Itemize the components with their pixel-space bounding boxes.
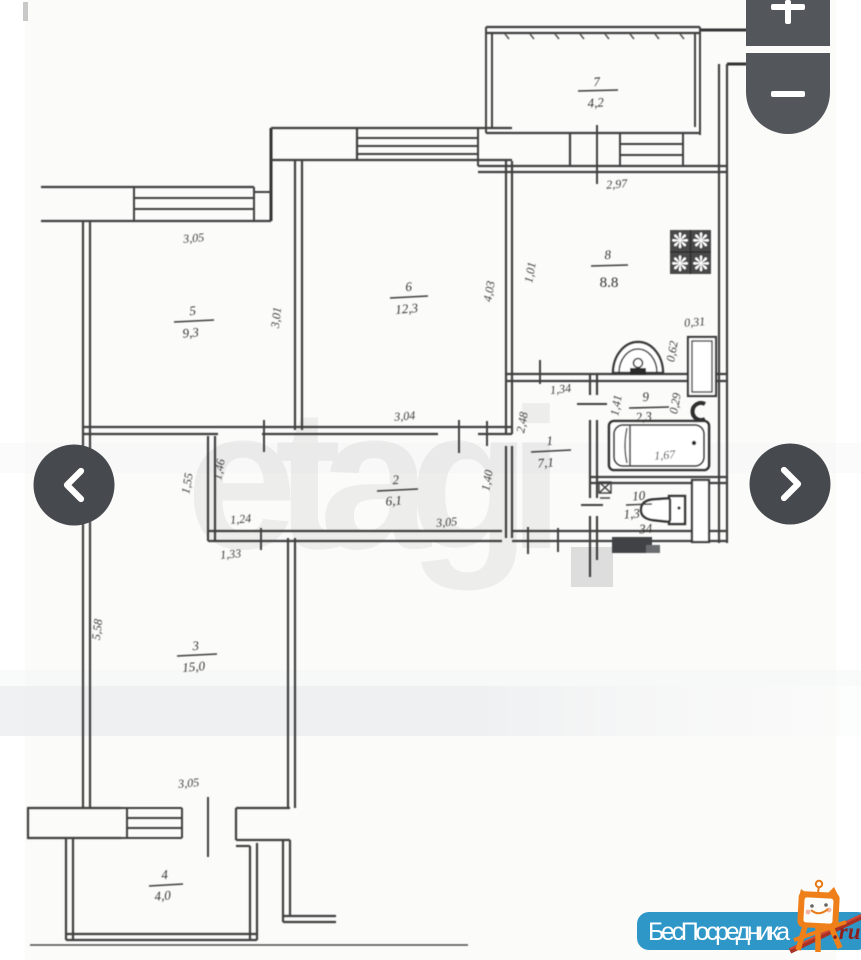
svg-text:❋: ❋ <box>692 253 710 276</box>
svg-text:3,01: 3,01 <box>268 306 285 330</box>
svg-text:3,05: 3,05 <box>435 514 458 530</box>
svg-text:etagi: etagi <box>186 368 564 591</box>
svg-text:4,2: 4,2 <box>587 94 605 110</box>
svg-text:БесПосредника: БесПосредника <box>648 918 790 946</box>
svg-text:10: 10 <box>632 488 647 504</box>
svg-text:3,05: 3,05 <box>182 230 205 246</box>
svg-text:34: 34 <box>638 521 654 537</box>
svg-text:1,24: 1,24 <box>230 511 252 527</box>
svg-text:❋: ❋ <box>671 230 689 253</box>
svg-text:1,3: 1,3 <box>623 505 641 521</box>
svg-text:12,3: 12,3 <box>395 300 419 317</box>
svg-text:1,34: 1,34 <box>549 381 571 397</box>
svg-text:9,3: 9,3 <box>182 324 200 340</box>
svg-text:6,1: 6,1 <box>385 492 402 508</box>
svg-text:❋: ❋ <box>692 230 710 253</box>
svg-text:0,31: 0,31 <box>684 314 706 330</box>
svg-text:1,33: 1,33 <box>220 546 242 562</box>
svg-text:15,0: 15,0 <box>182 658 206 675</box>
svg-text:3,05: 3,05 <box>177 775 200 791</box>
svg-text:1,67: 1,67 <box>654 447 677 463</box>
svg-text:2,97: 2,97 <box>606 176 629 192</box>
svg-text:4,0: 4,0 <box>154 887 172 903</box>
svg-text:7,1: 7,1 <box>537 454 554 470</box>
svg-text:2,3: 2,3 <box>635 408 653 424</box>
svg-text:❋: ❋ <box>671 253 689 276</box>
svg-text:5,58: 5,58 <box>89 618 105 641</box>
svg-text:8.8: 8.8 <box>600 275 619 291</box>
svg-text:.ru: .ru <box>833 919 861 944</box>
svg-text:1: 1 <box>546 433 554 448</box>
svg-text:3,04: 3,04 <box>393 408 416 424</box>
